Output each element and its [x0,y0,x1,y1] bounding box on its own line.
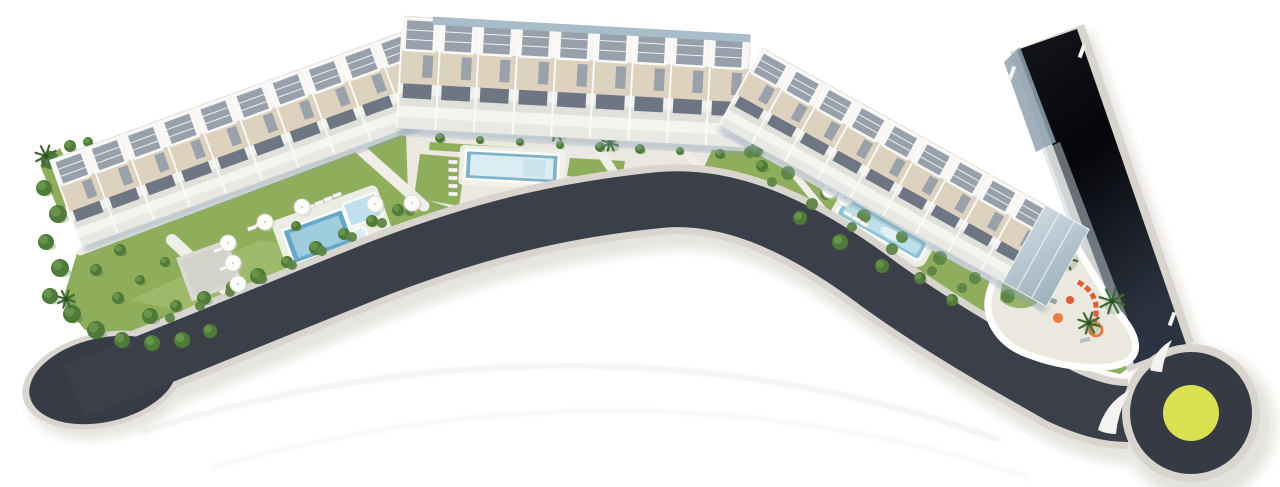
aerial-site-rendering [0,0,1280,487]
sun-lounger [448,176,457,180]
building-block-b-center [396,15,752,154]
hedge-bush [165,313,175,323]
hedge-bush [195,301,205,311]
sun-lounger [448,184,457,188]
hedge-bush [927,266,937,276]
hedge-bush [886,243,898,255]
hedge-bush [287,260,297,270]
hedge-bush [257,274,267,284]
roundabout-center-lime [1163,385,1219,441]
hedge-bush [847,222,857,232]
hedge-bush [347,232,357,242]
hedge-bush [806,198,818,210]
sun-lounger [448,168,457,172]
sun-lounger [448,160,457,164]
hedge-bush [957,283,967,293]
sun-lounger [448,192,457,196]
hedge-bush [377,218,387,228]
site-plan-canvas [0,0,1280,487]
hedge-bush [767,177,777,187]
hedge-bush [317,246,327,256]
